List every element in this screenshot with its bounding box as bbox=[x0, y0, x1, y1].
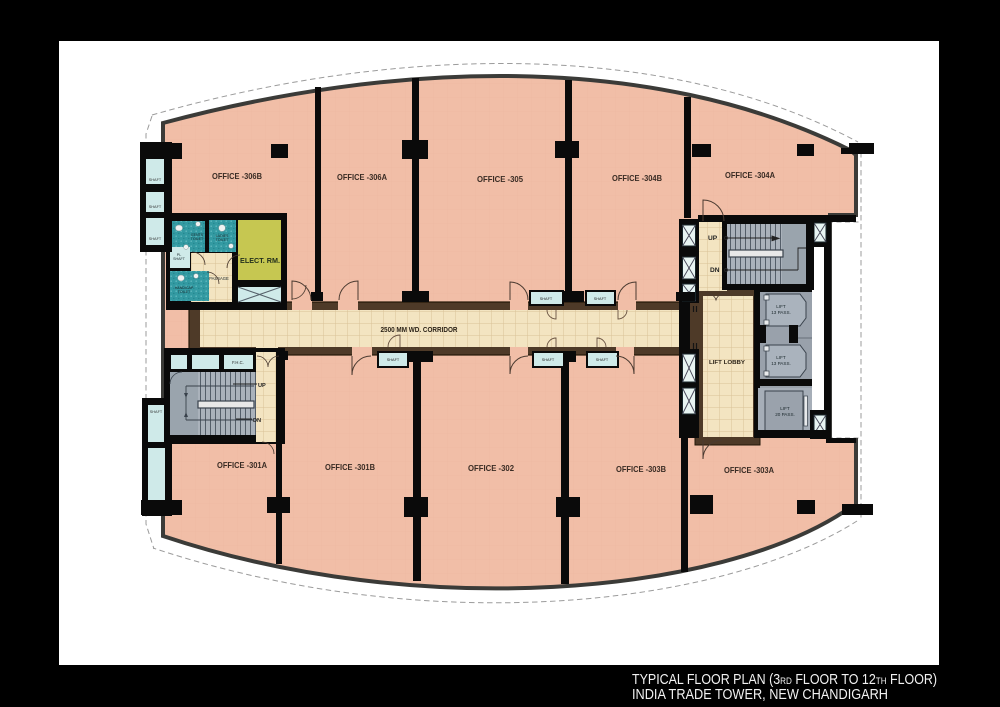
svg-text:SHAFT: SHAFT bbox=[594, 297, 607, 301]
svg-text:UP: UP bbox=[258, 383, 266, 389]
svg-text:SHAFT: SHAFT bbox=[149, 178, 162, 182]
svg-text:OFFICE -303A: OFFICE -303A bbox=[724, 465, 774, 475]
svg-text:OFFICE -306B: OFFICE -306B bbox=[212, 171, 262, 181]
svg-text:TOILET: TOILET bbox=[216, 238, 229, 242]
svg-text:SHAFT: SHAFT bbox=[149, 237, 162, 241]
svg-text:UP: UP bbox=[708, 235, 718, 242]
svg-text:DN: DN bbox=[710, 267, 720, 274]
svg-text:SHAFT: SHAFT bbox=[387, 358, 400, 362]
svg-text:2500 MM WD. CORRIDOR: 2500 MM WD. CORRIDOR bbox=[381, 325, 459, 334]
svg-text:SHAFT: SHAFT bbox=[542, 358, 555, 362]
svg-text:OFFICE -306A: OFFICE -306A bbox=[337, 172, 387, 182]
svg-text:SHAFT: SHAFT bbox=[173, 257, 186, 261]
svg-text:ELECT. RM.: ELECT. RM. bbox=[240, 256, 280, 265]
svg-text:OFFICE -304B: OFFICE -304B bbox=[612, 173, 662, 183]
svg-text:OFFICE -305: OFFICE -305 bbox=[477, 174, 523, 184]
svg-text:OFFICE -301B: OFFICE -301B bbox=[325, 462, 375, 472]
svg-text:DN: DN bbox=[253, 418, 261, 424]
svg-text:LIFT: LIFT bbox=[776, 304, 786, 309]
svg-text:SHAFT: SHAFT bbox=[596, 358, 609, 362]
svg-text:LIFT LOBBY: LIFT LOBBY bbox=[709, 360, 745, 366]
svg-text:PASSAGE: PASSAGE bbox=[209, 276, 229, 281]
svg-text:INDIA TRADE TOWER, NEW CHANDIG: INDIA TRADE TOWER, NEW CHANDIGARH bbox=[632, 687, 888, 703]
svg-text:SHAFT: SHAFT bbox=[540, 297, 553, 301]
svg-text:OFFICE -301A: OFFICE -301A bbox=[217, 460, 267, 470]
svg-text:TOILET: TOILET bbox=[191, 237, 204, 241]
svg-text:SHAFT: SHAFT bbox=[150, 410, 163, 414]
svg-text:20 PASS.: 20 PASS. bbox=[775, 412, 795, 417]
svg-text:OFFICE -303B: OFFICE -303B bbox=[616, 464, 666, 474]
svg-text:TOILET: TOILET bbox=[178, 290, 191, 294]
svg-text:13 PASS.: 13 PASS. bbox=[771, 310, 791, 315]
svg-text:OFFICE -302: OFFICE -302 bbox=[468, 463, 514, 473]
svg-text:OFFICE -304A: OFFICE -304A bbox=[725, 170, 775, 180]
svg-text:F.H.C.: F.H.C. bbox=[232, 360, 244, 365]
svg-text:LIFT: LIFT bbox=[780, 406, 790, 411]
svg-text:13 PASS.: 13 PASS. bbox=[771, 361, 791, 366]
svg-text:SHAFT: SHAFT bbox=[149, 205, 162, 209]
svg-text:LIFT: LIFT bbox=[776, 355, 786, 360]
